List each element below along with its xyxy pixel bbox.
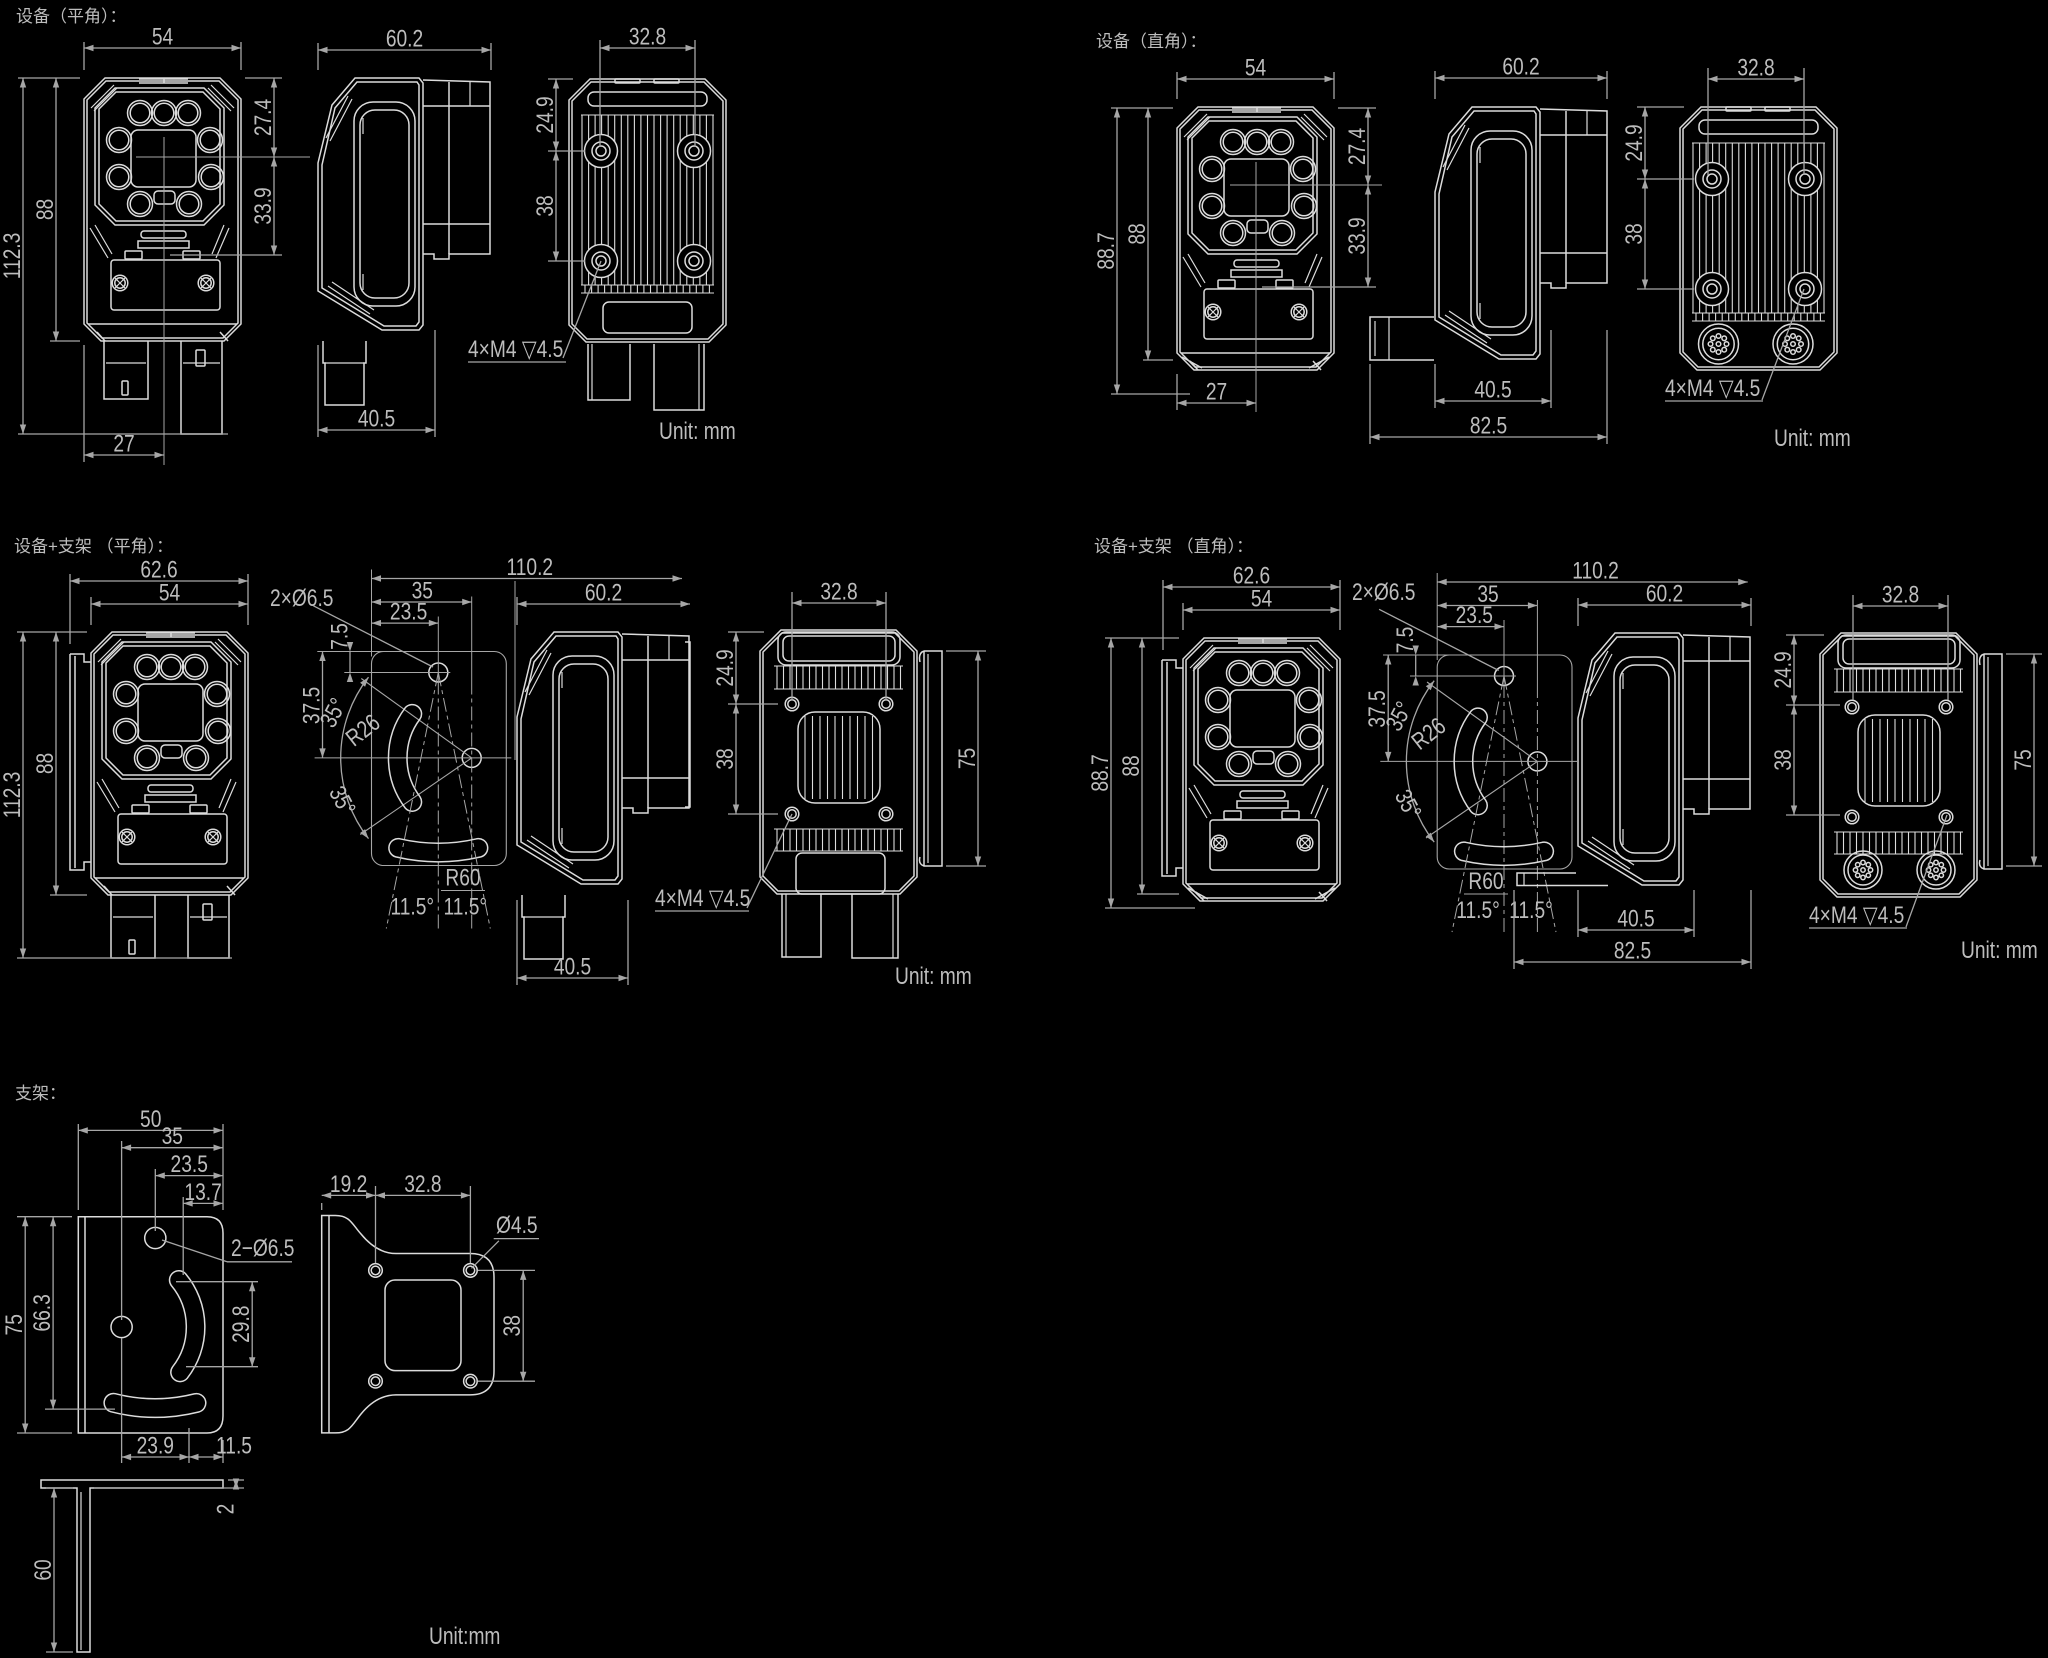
svg-text:88.7: 88.7 [1092, 232, 1120, 269]
svg-text:23.5: 23.5 [171, 1150, 208, 1178]
svg-text:38: 38 [711, 748, 739, 769]
svg-text:4×M4 ▽4.5: 4×M4 ▽4.5 [468, 335, 563, 363]
svg-text:24.9: 24.9 [531, 96, 559, 133]
svg-text:24.9: 24.9 [1620, 124, 1648, 161]
svg-text:110.2: 110.2 [506, 553, 553, 581]
svg-text:40.5: 40.5 [1474, 375, 1511, 403]
svg-text:2×Ø6.5: 2×Ø6.5 [1352, 578, 1415, 606]
svg-text:50: 50 [140, 1105, 161, 1133]
svg-text:27: 27 [113, 429, 134, 457]
svg-text:Unit: mm: Unit: mm [659, 417, 736, 445]
svg-text:40.5: 40.5 [1617, 904, 1654, 932]
svg-text:75: 75 [953, 748, 981, 769]
svg-text:33.9: 33.9 [249, 187, 277, 224]
svg-text:Unit:mm: Unit:mm [429, 1622, 500, 1650]
svg-text:110.2: 110.2 [1572, 556, 1619, 584]
svg-text:60.2: 60.2 [1646, 579, 1683, 607]
svg-text:88: 88 [1117, 755, 1145, 776]
svg-text:11.5°: 11.5° [444, 892, 488, 920]
svg-text:23.5: 23.5 [1456, 601, 1493, 629]
svg-text:75: 75 [2009, 749, 2037, 770]
svg-text:2×Ø6.5: 2×Ø6.5 [270, 584, 333, 612]
svg-text:88: 88 [1123, 223, 1151, 244]
svg-text:32.8: 32.8 [629, 22, 666, 50]
svg-text:7.5: 7.5 [325, 623, 353, 650]
svg-text:82.5: 82.5 [1470, 411, 1507, 439]
svg-text:54: 54 [159, 578, 180, 606]
svg-text:4×M4 ▽4.5: 4×M4 ▽4.5 [1809, 901, 1904, 929]
svg-text:R60: R60 [1468, 867, 1503, 895]
svg-text:19.2: 19.2 [330, 1170, 367, 1198]
svg-text:24.9: 24.9 [1769, 651, 1797, 688]
svg-text:38: 38 [531, 195, 559, 216]
svg-text:54: 54 [152, 22, 173, 50]
svg-text:R60: R60 [445, 863, 480, 891]
svg-text:11.5°: 11.5° [1509, 896, 1553, 924]
svg-text:13.7: 13.7 [184, 1178, 221, 1206]
svg-text:54: 54 [1251, 584, 1272, 612]
svg-text:82.5: 82.5 [1614, 936, 1651, 964]
svg-text:60.2: 60.2 [585, 578, 622, 606]
svg-text:2−Ø6.5: 2−Ø6.5 [231, 1234, 294, 1262]
svg-text:27: 27 [1206, 377, 1227, 405]
svg-text:Unit: mm: Unit: mm [1774, 424, 1851, 452]
svg-text:24.9: 24.9 [711, 649, 739, 686]
svg-text:66.3: 66.3 [28, 1294, 56, 1331]
svg-text:11.5°: 11.5° [1456, 896, 1500, 924]
svg-text:32.8: 32.8 [1737, 53, 1774, 81]
svg-text:88.7: 88.7 [1086, 754, 1114, 791]
svg-text:设备+支架 （平角）：: 设备+支架 （平角）： [14, 537, 173, 556]
svg-text:4×M4 ▽4.5: 4×M4 ▽4.5 [655, 884, 750, 912]
svg-text:7.5: 7.5 [1391, 627, 1419, 654]
svg-text:33.9: 33.9 [1343, 217, 1371, 254]
svg-text:2: 2 [211, 1504, 239, 1515]
svg-text:60.2: 60.2 [386, 24, 423, 52]
svg-text:Unit: mm: Unit: mm [1961, 936, 2038, 964]
svg-text:54: 54 [1245, 53, 1266, 81]
svg-text:29.8: 29.8 [227, 1306, 255, 1343]
svg-text:60: 60 [29, 1559, 57, 1580]
svg-text:4×M4 ▽4.5: 4×M4 ▽4.5 [1665, 374, 1760, 402]
svg-text:27.4: 27.4 [249, 99, 277, 136]
svg-text:23.5: 23.5 [390, 598, 427, 626]
svg-text:23.9: 23.9 [137, 1431, 174, 1459]
svg-text:32.8: 32.8 [1882, 580, 1919, 608]
svg-text:38: 38 [1769, 749, 1797, 770]
svg-text:35: 35 [162, 1122, 183, 1150]
svg-text:32.8: 32.8 [820, 577, 857, 605]
svg-text:设备+支架 （直角）：: 设备+支架 （直角）： [1094, 537, 1253, 556]
svg-text:112.3: 112.3 [0, 233, 26, 280]
svg-text:Unit: mm: Unit: mm [895, 962, 972, 990]
svg-text:Ø4.5: Ø4.5 [496, 1211, 538, 1239]
svg-text:40.5: 40.5 [554, 952, 591, 980]
svg-text:27.4: 27.4 [1343, 128, 1371, 165]
svg-text:38: 38 [1620, 223, 1648, 244]
svg-text:设备（直角）：: 设备（直角）： [1096, 32, 1207, 51]
svg-text:32.8: 32.8 [404, 1170, 441, 1198]
svg-text:支架：: 支架： [15, 1084, 66, 1103]
svg-text:112.3: 112.3 [0, 772, 26, 819]
svg-text:设备（平角）：: 设备（平角）： [16, 7, 127, 26]
svg-text:75: 75 [0, 1314, 28, 1335]
svg-text:11.5: 11.5 [216, 1431, 252, 1459]
svg-text:38: 38 [498, 1315, 526, 1336]
svg-text:11.5°: 11.5° [391, 892, 435, 920]
svg-text:88: 88 [31, 753, 59, 774]
svg-text:60.2: 60.2 [1502, 52, 1539, 80]
svg-text:40.5: 40.5 [358, 404, 395, 432]
svg-text:88: 88 [31, 199, 59, 220]
